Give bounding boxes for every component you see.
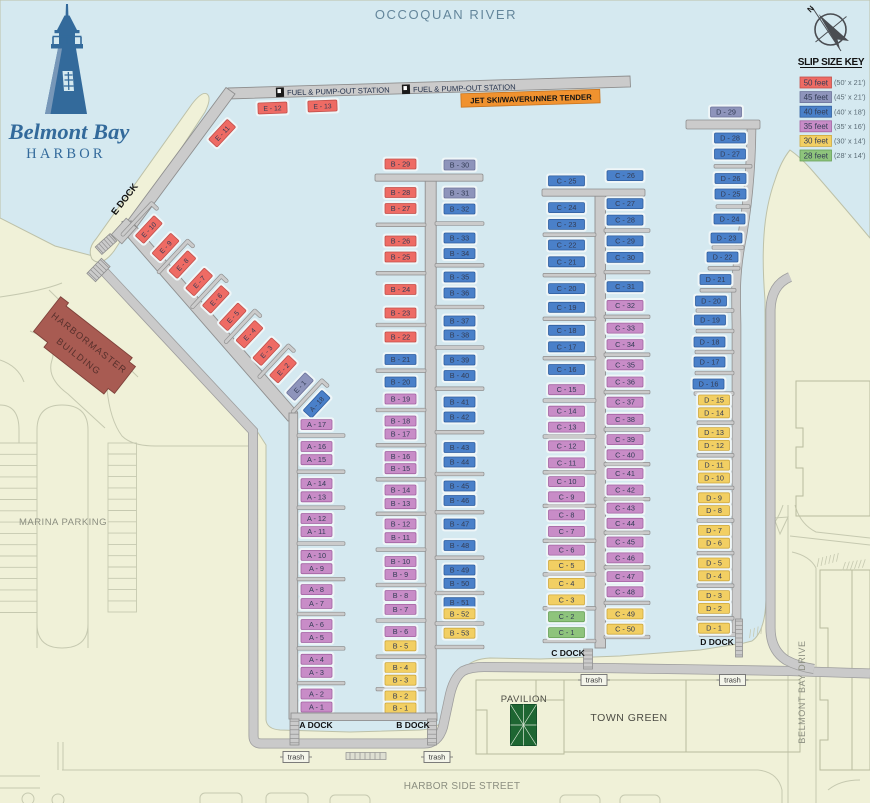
- svg-text:D - 7: D - 7: [706, 526, 722, 535]
- svg-text:trash: trash: [288, 753, 305, 762]
- svg-text:B - 42: B - 42: [450, 413, 469, 422]
- svg-text:A - 3: A - 3: [309, 668, 324, 677]
- svg-text:C - 17: C - 17: [557, 342, 577, 351]
- svg-text:A - 11: A - 11: [307, 527, 326, 536]
- svg-text:D - 22: D - 22: [713, 253, 733, 262]
- svg-text:B - 48: B - 48: [450, 541, 469, 550]
- svg-text:C - 12: C - 12: [557, 441, 577, 450]
- svg-text:trash: trash: [586, 676, 603, 685]
- svg-text:B - 10: B - 10: [391, 557, 410, 566]
- svg-text:OCCOQUAN RIVER: OCCOQUAN RIVER: [375, 7, 517, 22]
- svg-text:C - 49: C - 49: [615, 609, 635, 618]
- svg-text:D - 15: D - 15: [704, 396, 724, 405]
- svg-text:C - 24: C - 24: [557, 203, 577, 212]
- svg-text:35 feet: 35 feet: [804, 122, 829, 131]
- svg-text:A - 5: A - 5: [309, 633, 324, 642]
- svg-text:B - 12: B - 12: [391, 520, 410, 529]
- svg-text:B - 20: B - 20: [391, 378, 410, 387]
- svg-text:D - 16: D - 16: [699, 380, 719, 389]
- svg-text:B - 32: B - 32: [450, 205, 469, 214]
- svg-text:D - 25: D - 25: [721, 190, 741, 199]
- svg-text:D - 21: D - 21: [706, 275, 726, 284]
- svg-text:(50' x 21'): (50' x 21'): [834, 78, 866, 87]
- svg-text:C - 30: C - 30: [615, 253, 635, 262]
- svg-text:C - 16: C - 16: [557, 365, 577, 374]
- svg-text:B - 17: B - 17: [391, 430, 410, 439]
- svg-text:C - 42: C - 42: [615, 486, 635, 495]
- svg-text:B - 4: B - 4: [393, 663, 408, 672]
- svg-text:A - 7: A - 7: [309, 599, 324, 608]
- svg-text:BELMONT BAY DRIVE: BELMONT BAY DRIVE: [797, 640, 807, 743]
- svg-text:C - 19: C - 19: [557, 303, 577, 312]
- svg-text:B - 35: B - 35: [450, 273, 469, 282]
- svg-text:C DOCK: C DOCK: [551, 648, 585, 658]
- svg-text:B - 41: B - 41: [450, 398, 469, 407]
- svg-text:D - 2: D - 2: [706, 604, 722, 613]
- svg-text:D - 29: D - 29: [716, 108, 736, 117]
- svg-text:C - 28: C - 28: [615, 216, 635, 225]
- svg-text:C - 40: C - 40: [615, 450, 635, 459]
- svg-text:TOWN GREEN: TOWN GREEN: [590, 712, 667, 724]
- svg-text:C - 38: C - 38: [615, 415, 635, 424]
- svg-text:B - 37: B - 37: [450, 317, 469, 326]
- svg-text:C - 4: C - 4: [559, 579, 575, 588]
- svg-text:C - 50: C - 50: [615, 625, 635, 634]
- svg-text:A - 6: A - 6: [309, 620, 324, 629]
- svg-text:B - 51: B - 51: [450, 598, 469, 607]
- svg-text:(40' x 18'): (40' x 18'): [834, 107, 866, 116]
- svg-text:C - 43: C - 43: [615, 504, 635, 513]
- svg-text:B DOCK: B DOCK: [396, 720, 430, 730]
- svg-text:trash: trash: [724, 676, 741, 685]
- svg-text:C - 26: C - 26: [615, 171, 635, 180]
- svg-text:B - 39: B - 39: [450, 356, 469, 365]
- svg-text:C - 2: C - 2: [559, 612, 575, 621]
- svg-text:C - 48: C - 48: [615, 587, 635, 596]
- svg-text:Belmont Bay: Belmont Bay: [8, 119, 131, 144]
- svg-text:A - 13: A - 13: [307, 492, 326, 501]
- svg-text:B - 16: B - 16: [391, 452, 410, 461]
- svg-text:B - 34: B - 34: [450, 249, 469, 258]
- svg-text:A - 17: A - 17: [307, 420, 326, 429]
- svg-text:(28' x 14'): (28' x 14'): [834, 151, 866, 160]
- svg-text:B - 19: B - 19: [391, 395, 410, 404]
- svg-text:B - 24: B - 24: [391, 285, 410, 294]
- svg-text:B - 26: B - 26: [391, 237, 410, 246]
- svg-text:D - 4: D - 4: [706, 571, 722, 580]
- svg-text:D - 17: D - 17: [700, 358, 720, 367]
- svg-text:40 feet: 40 feet: [804, 108, 829, 117]
- svg-text:B - 6: B - 6: [393, 627, 408, 636]
- svg-text:D - 13: D - 13: [704, 428, 724, 437]
- svg-text:D - 19: D - 19: [700, 316, 720, 325]
- svg-text:A - 2: A - 2: [309, 690, 324, 699]
- svg-text:A - 12: A - 12: [307, 514, 326, 523]
- svg-text:B - 22: B - 22: [391, 333, 410, 342]
- svg-text:B - 2: B - 2: [393, 692, 408, 701]
- svg-text:D - 12: D - 12: [704, 441, 724, 450]
- svg-text:A - 4: A - 4: [309, 655, 324, 664]
- svg-text:D - 20: D - 20: [701, 297, 721, 306]
- svg-text:B - 3: B - 3: [393, 676, 408, 685]
- svg-text:B - 49: B - 49: [450, 566, 469, 575]
- svg-text:B - 31: B - 31: [450, 189, 469, 198]
- svg-text:B - 40: B - 40: [450, 371, 469, 380]
- svg-text:D - 3: D - 3: [706, 591, 722, 600]
- svg-text:C - 37: C - 37: [615, 398, 635, 407]
- svg-text:C - 29: C - 29: [615, 236, 635, 245]
- svg-text:D DOCK: D DOCK: [700, 637, 734, 647]
- svg-text:C - 18: C - 18: [557, 326, 577, 335]
- svg-text:D - 27: D - 27: [720, 150, 740, 159]
- svg-text:B - 25: B - 25: [391, 253, 410, 262]
- svg-text:D - 6: D - 6: [706, 539, 722, 548]
- svg-text:C - 6: C - 6: [559, 546, 575, 555]
- svg-text:B - 46: B - 46: [450, 496, 469, 505]
- svg-text:50 feet: 50 feet: [804, 78, 829, 87]
- svg-text:A - 1: A - 1: [309, 703, 324, 712]
- svg-text:B - 53: B - 53: [450, 629, 469, 638]
- svg-text:B - 52: B - 52: [450, 609, 469, 618]
- svg-text:B - 43: B - 43: [450, 443, 469, 452]
- svg-text:E - 13: E - 13: [313, 103, 332, 111]
- svg-text:C - 7: C - 7: [559, 527, 575, 536]
- svg-text:C - 46: C - 46: [615, 553, 635, 562]
- svg-text:C - 22: C - 22: [557, 241, 577, 250]
- svg-text:B - 38: B - 38: [450, 331, 469, 340]
- svg-text:B - 13: B - 13: [391, 499, 410, 508]
- svg-text:B - 50: B - 50: [450, 579, 469, 588]
- svg-text:C - 36: C - 36: [615, 378, 635, 387]
- svg-text:B - 23: B - 23: [391, 309, 410, 318]
- svg-text:45 feet: 45 feet: [804, 93, 829, 102]
- svg-text:A - 8: A - 8: [309, 585, 324, 594]
- svg-text:A - 16: A - 16: [307, 442, 326, 451]
- svg-text:B - 33: B - 33: [450, 234, 469, 243]
- svg-text:(30' x 14'): (30' x 14'): [834, 137, 866, 146]
- svg-text:A DOCK: A DOCK: [299, 720, 333, 730]
- svg-text:C - 33: C - 33: [615, 324, 635, 333]
- svg-text:(45' x 21'): (45' x 21'): [834, 93, 866, 102]
- svg-text:D - 26: D - 26: [721, 174, 741, 183]
- svg-text:PAVILION: PAVILION: [501, 694, 547, 705]
- svg-text:C - 15: C - 15: [557, 385, 577, 394]
- svg-text:B - 11: B - 11: [391, 533, 410, 542]
- svg-text:C - 11: C - 11: [557, 458, 576, 467]
- svg-text:C - 47: C - 47: [615, 572, 635, 581]
- svg-text:A - 9: A - 9: [309, 564, 324, 573]
- svg-text:D - 1: D - 1: [706, 624, 722, 633]
- svg-text:C - 9: C - 9: [559, 492, 575, 501]
- svg-text:C - 5: C - 5: [559, 561, 575, 570]
- svg-text:A - 15: A - 15: [307, 455, 326, 464]
- svg-text:C - 44: C - 44: [615, 519, 635, 528]
- svg-text:A - 10: A - 10: [307, 551, 326, 560]
- svg-text:D - 8: D - 8: [706, 506, 722, 515]
- svg-text:B - 47: B - 47: [450, 520, 469, 529]
- svg-text:B - 15: B - 15: [391, 464, 410, 473]
- svg-text:C - 32: C - 32: [615, 301, 635, 310]
- svg-text:B - 45: B - 45: [450, 482, 469, 491]
- svg-text:SLIP SIZE KEY: SLIP SIZE KEY: [798, 57, 865, 68]
- svg-text:B - 5: B - 5: [393, 641, 408, 650]
- svg-text:D - 5: D - 5: [706, 559, 722, 568]
- svg-text:B - 27: B - 27: [391, 204, 410, 213]
- svg-text:B - 28: B - 28: [391, 188, 410, 197]
- svg-text:HARBOR SIDE STREET: HARBOR SIDE STREET: [404, 781, 521, 792]
- svg-text:C - 41: C - 41: [615, 469, 635, 478]
- svg-text:C - 23: C - 23: [557, 220, 577, 229]
- svg-text:C - 34: C - 34: [615, 340, 635, 349]
- svg-text:C - 1: C - 1: [559, 628, 575, 637]
- svg-text:B - 29: B - 29: [391, 160, 410, 169]
- svg-text:C - 13: C - 13: [557, 423, 577, 432]
- svg-text:B - 7: B - 7: [393, 605, 408, 614]
- svg-text:C - 10: C - 10: [557, 477, 577, 486]
- svg-text:C - 14: C - 14: [557, 407, 577, 416]
- svg-text:B - 1: B - 1: [393, 704, 408, 713]
- svg-text:(35' x 16'): (35' x 16'): [834, 122, 866, 131]
- svg-text:C - 45: C - 45: [615, 538, 635, 547]
- svg-text:C - 25: C - 25: [557, 176, 577, 185]
- svg-text:C - 3: C - 3: [559, 595, 575, 604]
- svg-text:D - 14: D - 14: [704, 408, 724, 417]
- svg-text:C - 39: C - 39: [615, 435, 635, 444]
- svg-text:C - 31: C - 31: [615, 282, 635, 291]
- svg-text:B - 36: B - 36: [450, 289, 469, 298]
- svg-text:B - 8: B - 8: [393, 591, 408, 600]
- svg-text:B - 14: B - 14: [391, 486, 410, 495]
- svg-text:B - 30: B - 30: [450, 161, 469, 170]
- svg-text:B - 44: B - 44: [450, 458, 469, 467]
- svg-text:B - 9: B - 9: [393, 570, 408, 579]
- svg-text:HARBOR: HARBOR: [26, 146, 106, 162]
- svg-text:MARINA PARKING: MARINA PARKING: [19, 517, 107, 528]
- svg-text:trash: trash: [429, 753, 446, 762]
- svg-text:D - 18: D - 18: [700, 338, 720, 347]
- svg-text:C - 27: C - 27: [615, 199, 635, 208]
- svg-text:28 feet: 28 feet: [804, 151, 829, 160]
- svg-text:C - 35: C - 35: [615, 360, 635, 369]
- svg-text:E - 12: E - 12: [263, 105, 282, 113]
- svg-text:C - 8: C - 8: [559, 510, 575, 519]
- svg-text:B - 18: B - 18: [391, 417, 410, 426]
- svg-text:C - 20: C - 20: [557, 284, 577, 293]
- svg-text:D - 24: D - 24: [720, 215, 740, 224]
- svg-text:D - 11: D - 11: [704, 461, 723, 470]
- svg-text:30 feet: 30 feet: [804, 137, 829, 146]
- svg-text:D - 28: D - 28: [720, 134, 740, 143]
- svg-text:B - 21: B - 21: [391, 355, 410, 364]
- svg-text:A - 14: A - 14: [307, 479, 326, 488]
- svg-text:D - 10: D - 10: [704, 474, 724, 483]
- svg-text:C - 21: C - 21: [557, 257, 577, 266]
- svg-text:D - 23: D - 23: [717, 234, 737, 243]
- svg-text:D - 9: D - 9: [706, 493, 722, 502]
